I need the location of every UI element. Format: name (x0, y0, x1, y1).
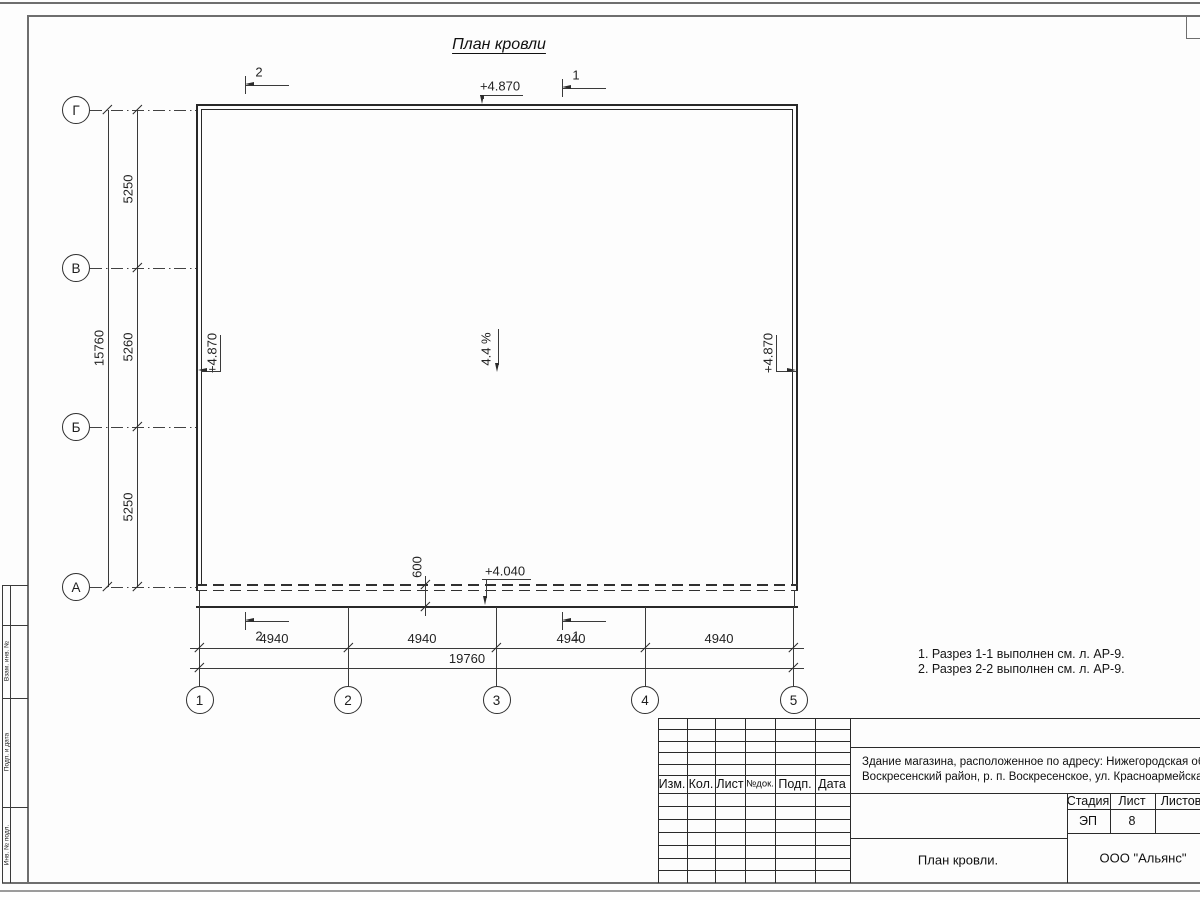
section-mark-arrow-head (562, 85, 571, 89)
slope-label: 4.4 % (479, 332, 494, 365)
drawing-title: План кровли (452, 36, 546, 54)
frame-top-line (27, 15, 1200, 17)
section-mark-number: 2 (255, 65, 262, 80)
elevation-left-value: +4.870 (205, 333, 220, 373)
axis-circle-5: 5 (780, 686, 808, 714)
titleblock-sheet-value: 8 (1129, 814, 1136, 828)
elevation-right-arrow-head (787, 368, 796, 372)
roof-eave-right-edge (794, 590, 795, 607)
axis-circle-b: Б (62, 413, 90, 441)
dimension-value-bottom-total: 19760 (449, 651, 485, 666)
titleblock-grid (658, 806, 850, 807)
corner-box-left (1186, 17, 1187, 38)
elevation-eave-arrow-head (483, 596, 487, 605)
side-strip-divider (2, 807, 28, 808)
roof-edge-left-outer (196, 104, 198, 590)
section-mark-arrow-head (245, 82, 254, 86)
slope-arrow-head (495, 363, 499, 372)
titleblock-stage-value: ЭП (1079, 814, 1097, 828)
elevation-eave-arrow-line (486, 579, 487, 598)
titleblock-grid (850, 718, 851, 883)
titleblock-grid (658, 819, 850, 820)
elevation-top-value: +4.870 (480, 79, 520, 94)
axis-label: Г (72, 103, 79, 118)
section-mark-arrow-head (562, 618, 571, 622)
sheet-top-edge (0, 2, 1200, 4)
section-mark-arrow-head (245, 618, 254, 622)
axis-label: В (71, 261, 80, 276)
note-line: 2. Разрез 2-2 выполнен см. л. АР-9. (918, 662, 1125, 676)
axis-circle-v: В (62, 254, 90, 282)
axis-label: 5 (790, 693, 798, 708)
titleblock-col-kol: Кол. (689, 777, 714, 791)
titleblock-doc-title: План кровли. (918, 853, 998, 868)
elevation-top-arrow-head (480, 95, 484, 104)
titleblock-organization: ООО "Альянс" (1100, 851, 1187, 866)
dimension-value-left-total: 15760 (92, 330, 107, 366)
slope-arrow-line (498, 329, 499, 365)
elevation-eave-value: +4.040 (485, 564, 525, 579)
section-mark-number: 1 (572, 68, 579, 83)
titleblock-grid (658, 729, 850, 730)
titleblock-col-izm: Изм. (659, 777, 686, 791)
axis-line (90, 427, 196, 428)
titleblock-col-ndok: №док. (746, 779, 774, 790)
corner-box-bottom (1186, 38, 1200, 39)
elevation-top-leader (480, 95, 523, 96)
roof-wall-dashed-line-outer (196, 584, 798, 586)
titleblock-address-line2: Воскресенский район, р. п. Воскресенское… (862, 771, 1200, 783)
axis-circle-4: 4 (631, 686, 659, 714)
dimension-value: 5260 (121, 333, 136, 362)
side-strip-label: Подп. и дата (3, 733, 10, 771)
side-strip-divider (2, 585, 28, 586)
side-strip-divider (2, 698, 28, 699)
axis-label: 4 (641, 693, 649, 708)
dimension-line-left-total (108, 110, 109, 587)
axis-label: 2 (344, 693, 352, 708)
titleblock-grid (658, 845, 850, 846)
axis-circle-1: 1 (186, 686, 214, 714)
side-strip-divider (2, 625, 28, 626)
roof-wall-dashed-line-inner (196, 590, 798, 592)
axis-label: 3 (493, 693, 501, 708)
titleblock-sheet-label: Лист (1118, 794, 1145, 808)
dimension-value: 4940 (260, 631, 289, 646)
titleblock-col-list: Лист (716, 777, 743, 791)
roof-edge-left-inner (201, 109, 202, 586)
frame-bottom-line (2, 882, 1200, 884)
elevation-eave-leader (482, 579, 531, 580)
side-strip-label: Взам. инв. № (3, 641, 10, 681)
axis-label: Б (72, 420, 81, 435)
note-line: 1. Разрез 1-1 выполнен см. л. АР-9. (918, 647, 1125, 661)
dimension-value: 4940 (557, 631, 586, 646)
axis-circle-3: 3 (483, 686, 511, 714)
sheet-bottom-edge (0, 890, 1200, 892)
titleblock-grid (850, 747, 1200, 748)
titleblock-grid (658, 832, 850, 833)
elevation-right-value: +4.870 (761, 333, 776, 373)
titleblock-grid (658, 752, 850, 753)
dimension-value: 5250 (121, 175, 136, 204)
titleblock-grid (1067, 809, 1200, 810)
titleblock-grid (658, 870, 850, 871)
titleblock-grid (1067, 833, 1200, 834)
titleblock-grid (1155, 793, 1156, 833)
frame-left-line (27, 15, 29, 883)
side-strip-label: Инв. № подл. (3, 825, 10, 866)
dimension-line-bottom-total (190, 668, 804, 669)
roof-edge-top-outer (196, 104, 798, 106)
titleblock-grid (658, 764, 850, 765)
axis-line (90, 268, 196, 269)
titleblock-grid (658, 858, 850, 859)
titleblock-address-line1: Здание магазина, расположенное по адресу… (862, 756, 1200, 768)
axis-circle-g: Г (62, 96, 90, 124)
titleblock-col-data: Дата (818, 777, 846, 791)
roof-eave-left-edge (199, 590, 200, 607)
roof-edge-right-inner (792, 109, 793, 586)
dimension-line-left-segments (137, 110, 138, 587)
drawing-sheet: Взам. инв. № Подп. и дата Инв. № подл. П… (0, 0, 1200, 900)
dimension-value: 4940 (408, 631, 437, 646)
titleblock-col-podp: Подп. (778, 777, 811, 791)
axis-label: 1 (196, 693, 204, 708)
roof-edge-top-inner (201, 109, 793, 110)
roof-eave-line (196, 606, 798, 608)
titleblock-border (658, 718, 1200, 719)
titleblock-stage-label: Стадия (1067, 794, 1110, 808)
titleblock-grid (850, 838, 1067, 839)
elevation-left-arrow-head (198, 368, 207, 372)
roof-edge-right-outer (796, 104, 798, 590)
titleblock-grid (658, 775, 850, 776)
axis-label: А (71, 580, 80, 595)
axis-circle-a: А (62, 573, 90, 601)
elevation-right-leader (776, 335, 777, 371)
axis-circle-2: 2 (334, 686, 362, 714)
titleblock-grid (658, 741, 850, 742)
titleblock-grid (1110, 793, 1111, 833)
dimension-value-eave-offset: 600 (410, 556, 425, 578)
dimension-value: 5250 (121, 493, 136, 522)
dimension-value: 4940 (705, 631, 734, 646)
titleblock-sheets-label: Листов (1161, 794, 1200, 808)
elevation-left-leader (220, 335, 221, 371)
